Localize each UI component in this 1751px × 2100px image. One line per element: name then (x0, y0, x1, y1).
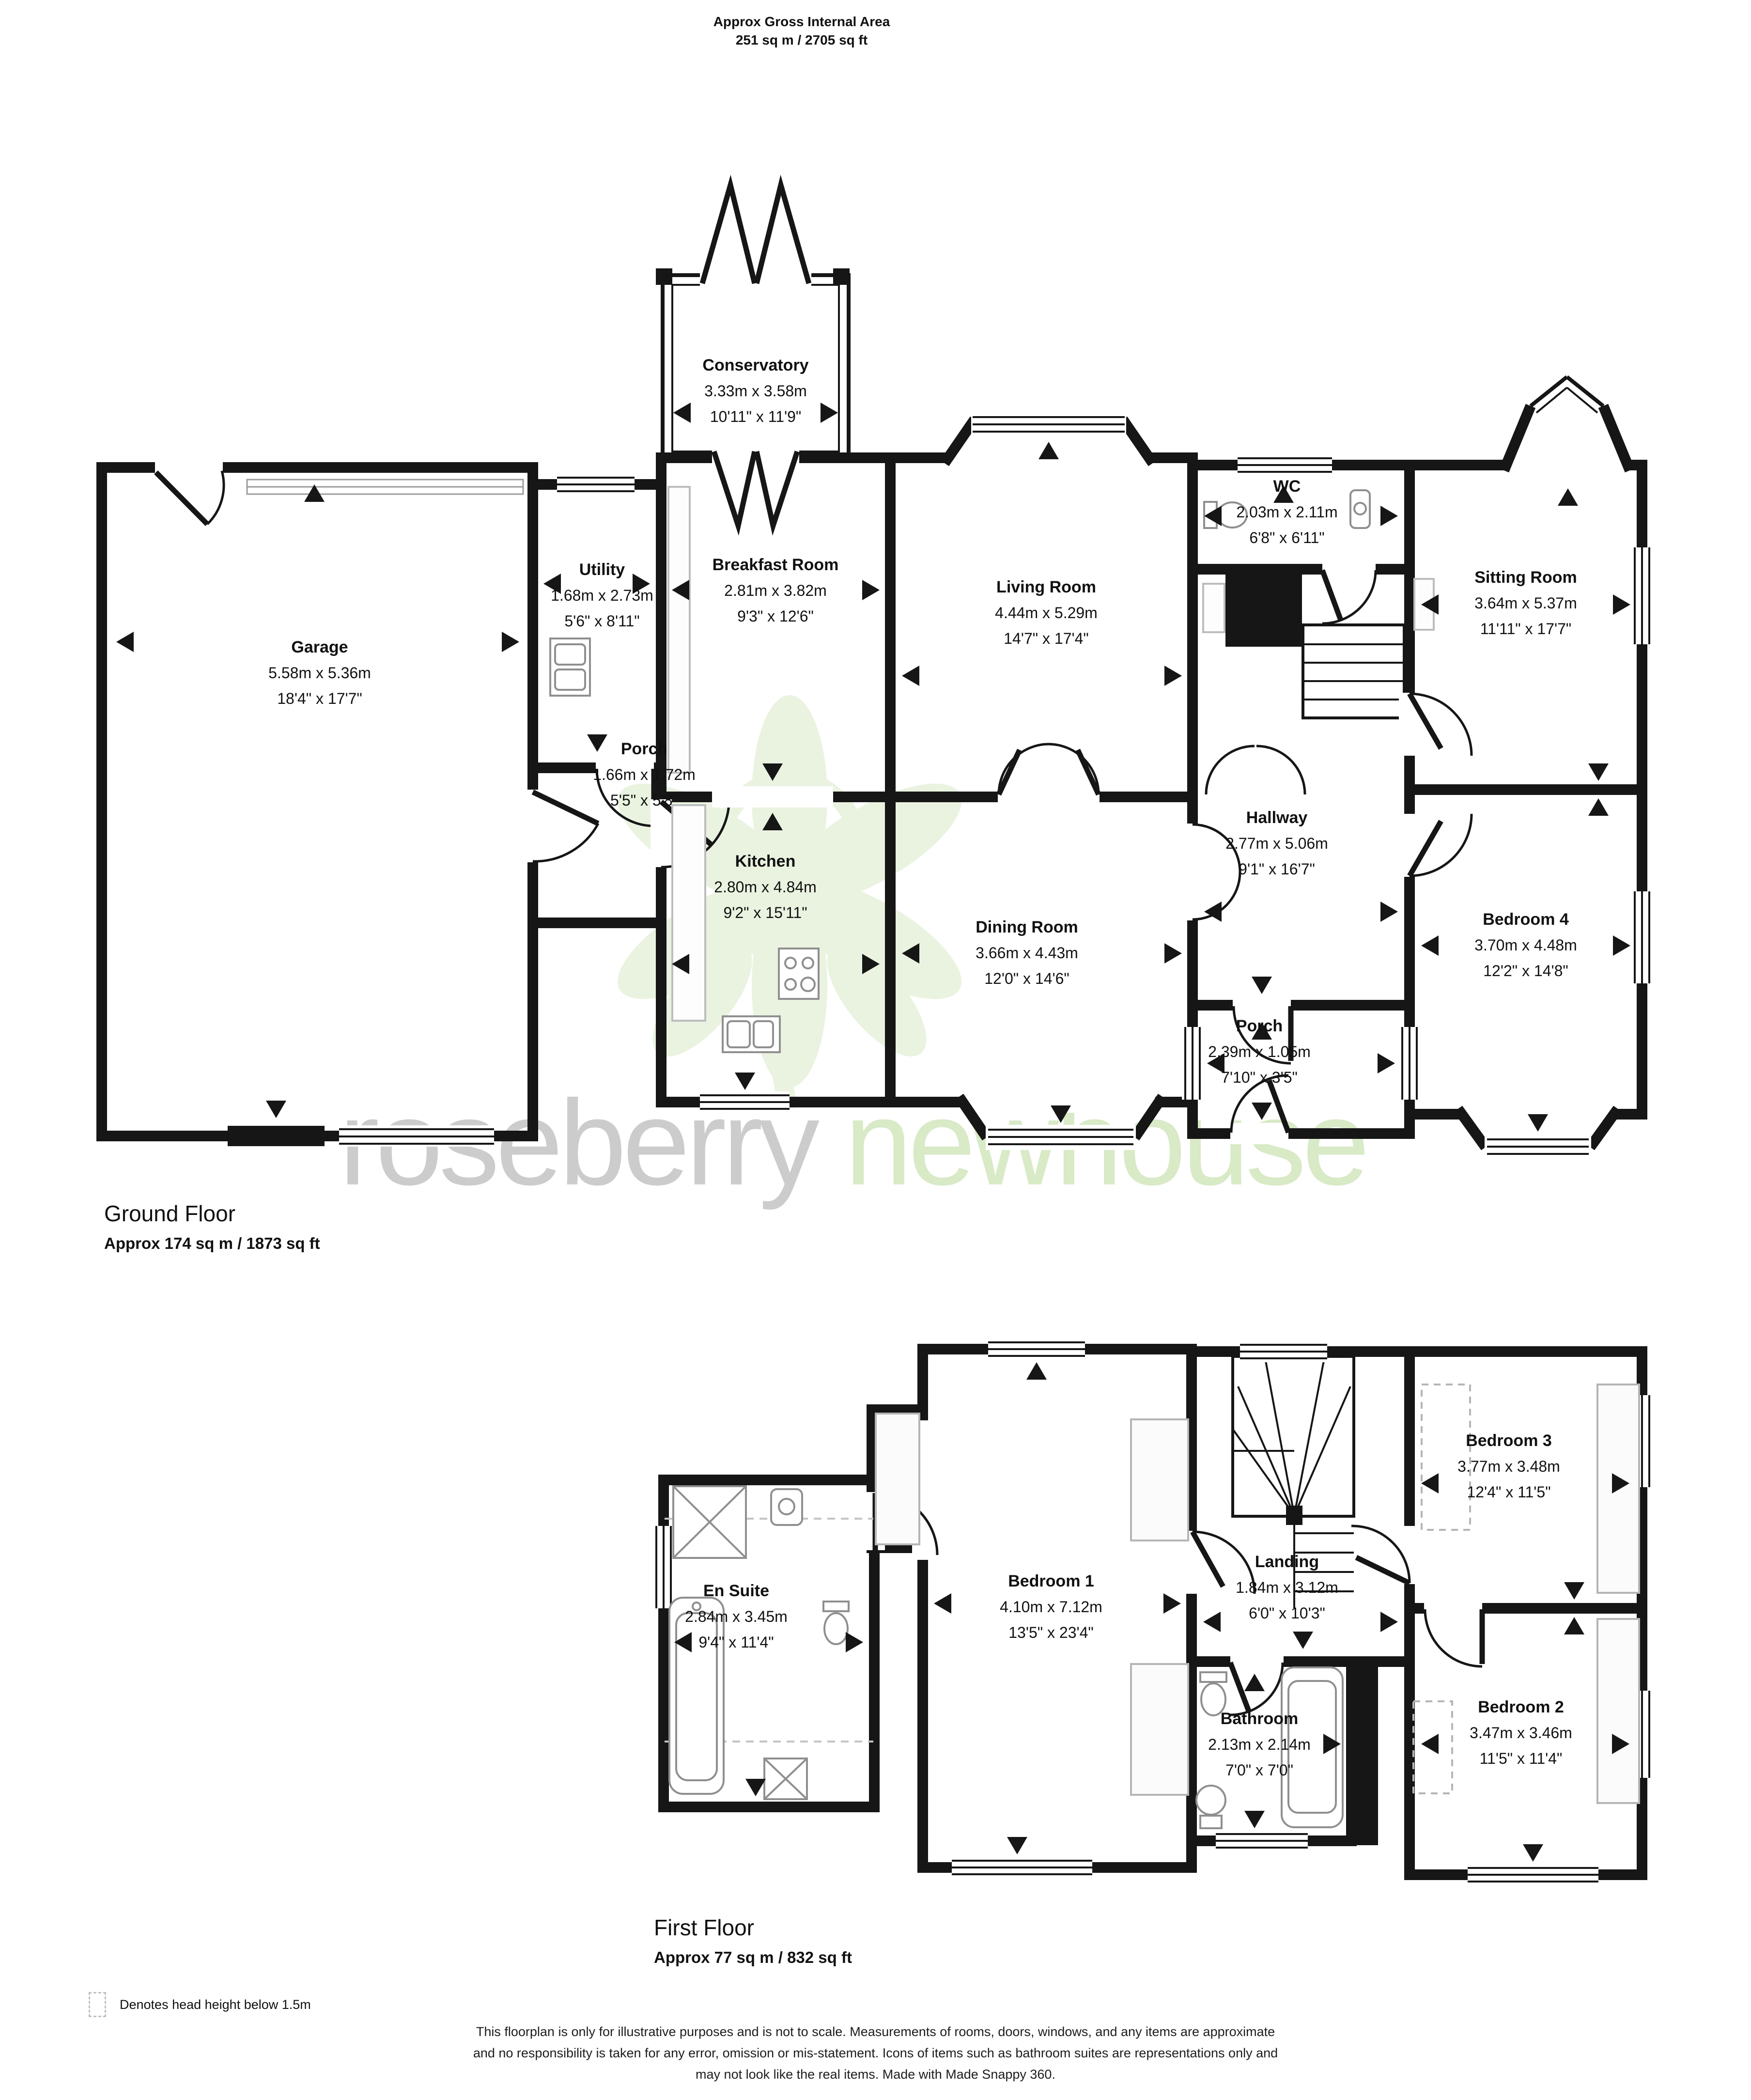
first-floor-area: Approx 77 sq m / 832 sq ft (654, 1948, 852, 1967)
room-label-bedroom-2: Bedroom 2 3.47m x 3.46m 11'5" x 11'4" (1470, 1695, 1572, 1772)
title-line-1: Approx Gross Internal Area (584, 13, 1020, 31)
title-line-2: 251 sq m / 2705 sq ft (584, 31, 1020, 49)
disclaimer: This floorplan is only for illustrative … (0, 2021, 1751, 2085)
first-floor-plan (653, 1338, 1653, 1885)
room-label-dining-room: Dining Room 3.66m x 4.43m 12'0" x 14'6" (976, 915, 1078, 992)
room-label-breakfast-room: Breakfast Room 2.81m x 3.82m 9'3" x 12'6… (713, 552, 839, 629)
disclaimer-line-1: This floorplan is only for illustrative … (0, 2021, 1751, 2042)
head-height-icon (89, 1992, 106, 2017)
room-label-kitchen: Kitchen 2.80m x 4.84m 9'2" x 15'11" (714, 849, 817, 926)
room-label-bathroom: Bathroom 2.13m x 2.14m 7'0" x 7'0" (1208, 1706, 1311, 1783)
disclaimer-line-3: may not look like the real items. Made w… (0, 2064, 1751, 2085)
room-label-bedroom-1: Bedroom 1 4.10m x 7.12m 13'5" x 23'4" (1000, 1569, 1102, 1646)
room-label-landing: Landing 1.84m x 3.12m 6'0" x 10'3" (1236, 1549, 1338, 1626)
room-label-hallway: Hallway 2.77m x 5.06m 9'1" x 16'7" (1225, 805, 1328, 882)
room-label-sitting-room: Sitting Room 3.64m x 5.37m 11'11" x 17'7… (1474, 565, 1577, 642)
room-label-porch-side: Porch 1.66m x 1.72m 5'5" x 5'8" (593, 736, 696, 813)
disclaimer-line-2: and no responsibility is taken for any e… (0, 2042, 1751, 2064)
room-label-wc: WC 2.03m x 2.11m 6'8" x 6'11" (1236, 474, 1337, 551)
room-label-conservatory: Conservatory 3.33m x 3.58m 10'11" x 11'9… (702, 353, 808, 430)
page-title: Approx Gross Internal Area 251 sq m / 27… (584, 13, 1020, 49)
room-label-en-suite: En Suite 2.84m x 3.45m 9'4" x 11'4" (685, 1578, 788, 1655)
room-label-garage: Garage 5.58m x 5.36m 18'4" x 17'7" (268, 635, 371, 712)
legend-label: Denotes head height below 1.5m (120, 1997, 311, 2012)
ground-floor-area: Approx 174 sq m / 1873 sq ft (104, 1234, 320, 1253)
room-label-living-room: Living Room 4.44m x 5.29m 14'7" x 17'4" (995, 575, 1098, 652)
floor-plan-drawing: roseberrynewhouse (0, 0, 1751, 2100)
ground-floor-heading: Ground Floor (104, 1200, 235, 1227)
room-label-porch-rear: Porch 2.39m x 1.05m 7'10" x 3'5" (1208, 1013, 1311, 1090)
first-floor-heading: First Floor (654, 1914, 754, 1941)
legend: Denotes head height below 1.5m (89, 1992, 311, 2017)
room-label-utility: Utility 1.68m x 2.73m 5'6" x 8'11" (551, 557, 653, 634)
floorplan-page: roseberrynewhouse (0, 0, 1751, 2100)
room-label-bedroom-3: Bedroom 3 3.77m x 3.48m 12'4" x 11'5" (1457, 1428, 1560, 1505)
room-label-bedroom-4: Bedroom 4 3.70m x 4.48m 12'2" x 14'8" (1474, 907, 1577, 984)
